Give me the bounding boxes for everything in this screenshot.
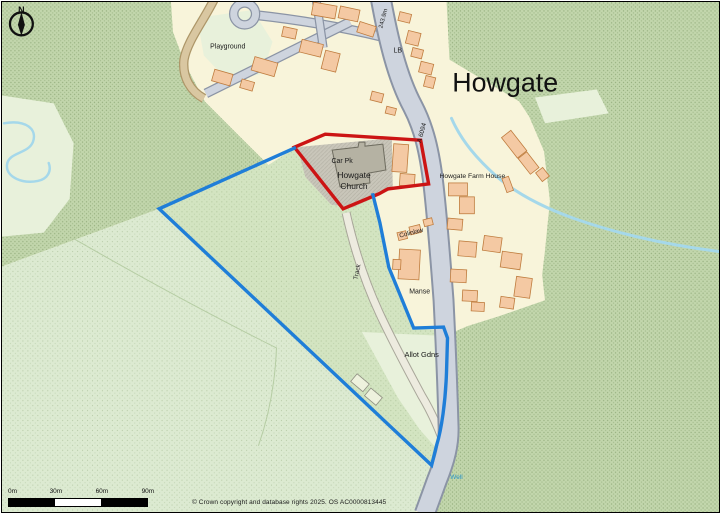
map-frame: HowgatePlaygroundCar PkHowgateChurchHowg…	[0, 0, 721, 517]
building	[500, 251, 522, 270]
building	[458, 241, 477, 257]
scale-bar: 0m 30m 60m 90m	[8, 488, 150, 510]
building	[462, 290, 477, 302]
scale-tick-90: 90m	[142, 488, 155, 495]
building	[471, 302, 484, 312]
scale-tick-0: 0m	[8, 488, 17, 495]
label-playground: Playground	[210, 44, 245, 51]
building	[398, 249, 420, 280]
scale-tick-30: 30m	[50, 488, 63, 495]
building	[405, 30, 421, 46]
copyright-text: © Crown copyright and database rights 20…	[192, 499, 386, 506]
building	[392, 144, 409, 173]
label-howgate-farm-house: Howgate Farm House	[440, 173, 506, 180]
building	[449, 183, 468, 196]
label-well: Well	[450, 474, 462, 481]
map-canvas: HowgatePlaygroundCar PkHowgateChurchHowg…	[2, 2, 719, 512]
label-howgate-church-2: Church	[340, 181, 368, 191]
building	[423, 76, 435, 89]
north-label: N	[18, 5, 24, 15]
building	[393, 259, 401, 269]
building	[459, 197, 474, 214]
title-howgate: Howgate	[452, 67, 558, 97]
scale-tick-60: 60m	[96, 488, 109, 495]
scale-bar-ticks: 0m 30m 60m 90m	[8, 488, 150, 497]
label-manse: Manse	[409, 288, 430, 295]
building	[514, 276, 533, 298]
building	[447, 218, 463, 230]
label-lb: LB	[394, 48, 403, 55]
scale-segment-black-1	[9, 499, 55, 506]
building	[482, 235, 502, 252]
map-border: HowgatePlaygroundCar PkHowgateChurchHowg…	[1, 1, 720, 513]
scale-bar-segments	[8, 498, 148, 507]
scale-segment-white	[55, 499, 101, 506]
label-howgate-church-1: Howgate	[337, 170, 371, 180]
label-car-pk: Car Pk	[331, 158, 353, 165]
building	[450, 269, 467, 283]
scale-segment-black-2	[101, 499, 147, 506]
label-allot-gdns: Allot Gdns	[404, 350, 439, 359]
building	[500, 296, 515, 309]
